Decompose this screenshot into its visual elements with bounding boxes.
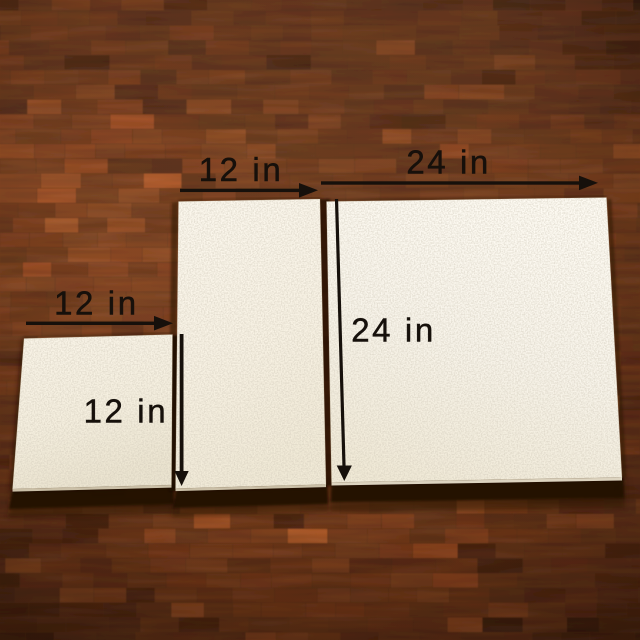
svg-text:12 in: 12 in (84, 393, 169, 430)
svg-text:24 in: 24 in (406, 144, 491, 181)
svg-text:24 in: 24 in (351, 312, 436, 349)
svg-text:12 in: 12 in (199, 151, 284, 188)
svg-text:12 in: 12 in (54, 285, 139, 322)
